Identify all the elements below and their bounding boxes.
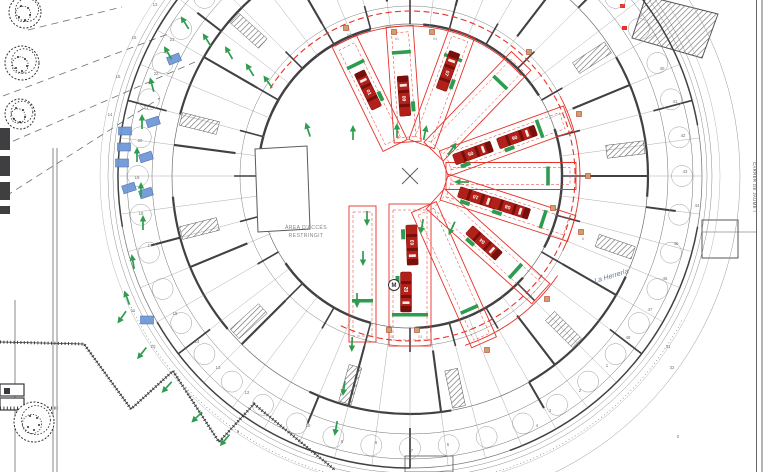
arrow-shaft: [424, 132, 426, 140]
evacuation-arrow: [350, 125, 356, 140]
evacuation-arrow: [134, 147, 140, 162]
tree-dot: [24, 58, 26, 60]
vehicle-window: [403, 301, 410, 304]
hydrant-marker: [485, 348, 490, 353]
arrow-head: [200, 32, 209, 41]
arrow-head: [360, 260, 366, 267]
blue-fixture: [118, 143, 131, 151]
room-number: 8: [237, 429, 240, 434]
tree-canopy: [9, 0, 41, 28]
vehicle-stripe: [407, 248, 418, 251]
arrow-shaft: [184, 22, 189, 29]
room-number: 11: [131, 308, 136, 313]
arrow-shaft: [206, 39, 211, 46]
evacuation-arrow: [147, 76, 157, 92]
facade-wall: [510, 227, 698, 451]
blue-fixture: [139, 151, 154, 163]
hydrant-marker: [392, 30, 397, 35]
hydrant-marker-label: 03: [418, 335, 422, 339]
wall-stub: [542, 88, 563, 100]
room-number: 14: [108, 112, 113, 117]
room-number: 10: [306, 423, 311, 428]
hydrant-marker-label: 04: [433, 37, 437, 41]
wall-stub: [322, 308, 334, 329]
blue-fixture-rect: [139, 151, 154, 163]
tree-dot: [36, 417, 38, 419]
arrow-shaft: [249, 69, 254, 76]
fire-vehicle: 08: [488, 197, 531, 225]
wall-stub: [486, 24, 498, 45]
room-number: 45: [674, 241, 679, 246]
dotted-arc: [124, 291, 682, 472]
vehicle-stripe: [401, 295, 412, 298]
room-number: 4: [536, 423, 539, 428]
inner-wall: [415, 278, 523, 328]
wall-stub: [364, 6, 370, 29]
partition-line: [467, 0, 521, 37]
arrow-head: [354, 302, 360, 309]
partition-line: [264, 0, 335, 46]
arrow-shaft: [196, 412, 202, 418]
room-wall: [578, 0, 599, 8]
arcade-cell: [194, 344, 215, 365]
room-number: 13: [153, 2, 158, 7]
room-wall: [307, 396, 318, 424]
stair-hatch: [339, 365, 362, 405]
floor-plan-drawing: 01090705061008040302M 606104980403 13161…: [0, 0, 768, 472]
hydrant-marker: [430, 30, 435, 35]
arcade-cell: [512, 413, 533, 434]
arrow-head: [222, 44, 231, 53]
annex-door: [0, 150, 10, 156]
annex-door: [0, 200, 10, 206]
wall-stub: [364, 323, 370, 346]
arena-room-block: [255, 146, 310, 232]
room-number: 21: [144, 105, 149, 110]
arrow-head: [350, 125, 356, 132]
evacuation-arrow: [417, 219, 426, 235]
lane-green-bar: [546, 167, 550, 186]
hydrant-marker-label: 9: [554, 213, 556, 217]
blue-fixture: [119, 127, 132, 135]
tree: [5, 46, 39, 80]
arrow-shaft: [344, 381, 345, 389]
wall-stub: [258, 88, 279, 100]
trees: [5, 0, 54, 442]
room-wall: [291, 0, 322, 24]
room-wall: [529, 382, 544, 408]
evacuation-arrow: [222, 44, 235, 60]
blue-fixture-rect: [119, 127, 132, 135]
fire-vehicle: 07: [436, 50, 465, 93]
vehicle-cab: [401, 306, 412, 312]
arrow-head: [121, 289, 129, 297]
fire-vehicle: 04: [462, 226, 502, 265]
hydrant-marker: [527, 50, 532, 55]
vehicle-green-pad: [411, 101, 416, 111]
wall-stub: [258, 252, 279, 264]
room-number: 18: [139, 211, 144, 216]
tree-dot: [15, 67, 17, 69]
arrow-head: [454, 179, 461, 185]
annex-fixture: [4, 388, 10, 394]
arrow-head: [331, 429, 338, 437]
blue-fixture-rect: [122, 182, 137, 194]
stair-hatch: [545, 311, 581, 347]
vehicle-window: [400, 84, 407, 87]
vehicle-cab: [397, 76, 408, 83]
tree-dot: [29, 14, 31, 16]
tree-dot: [29, 415, 31, 417]
arrow-shaft: [141, 347, 146, 354]
arcade-cell: [605, 344, 626, 365]
tree-dot: [21, 70, 23, 72]
room-number: 7: [411, 448, 414, 453]
vehicle-stripe: [401, 281, 412, 284]
stair-hatch: [179, 113, 219, 135]
room-number: 41: [673, 99, 678, 104]
m-badge-letter: M: [392, 283, 397, 289]
inner-wall: [286, 263, 371, 323]
room-number: 10: [151, 344, 156, 349]
vehicle-number: 03: [410, 239, 416, 245]
sight-line: [28, 7, 122, 30]
room-wall: [610, 329, 642, 353]
evacuation-arrow: [121, 289, 132, 305]
vehicle-number: 09: [400, 96, 406, 102]
room-number: 48: [626, 335, 631, 340]
room-wall: [433, 350, 441, 411]
arcade-cell: [221, 371, 242, 392]
annex-door: [0, 176, 10, 182]
arcade-cell: [476, 426, 497, 447]
room-number: 14: [195, 339, 200, 344]
tree-canopy: [5, 46, 39, 80]
arrow-head: [422, 125, 430, 133]
partition-line: [485, 0, 556, 46]
evacuation-arrow: [360, 251, 366, 266]
fire-vehicle: 02: [396, 272, 412, 312]
tree-canopy: [14, 402, 54, 442]
room-number: 17: [148, 243, 153, 248]
lane-green-bar: [392, 50, 411, 55]
arrow-shaft: [451, 222, 455, 230]
arcade-cell: [287, 413, 308, 434]
lane-green-bar: [346, 59, 365, 71]
arrow-shaft: [166, 382, 172, 388]
evacuation-arrow: [364, 211, 370, 226]
tree: [9, 0, 41, 28]
fire-vehicle: 01: [354, 67, 386, 110]
red-boundary-arc: [270, 11, 575, 341]
hydrant-marker: [551, 206, 556, 211]
evacuation-arrow: [243, 62, 256, 78]
arrow-head: [364, 220, 370, 227]
room-number: 13: [216, 365, 221, 370]
tree-canopy: [5, 99, 35, 129]
room-number: 20: [138, 138, 143, 143]
arrow-shaft: [126, 297, 129, 305]
arrow-head: [178, 15, 187, 24]
blue-fixture-rect: [118, 143, 131, 151]
tree-dot: [24, 19, 26, 21]
facade-wall: [118, 0, 222, 227]
street-name-label: CARRER DE JAUME I: [752, 162, 757, 212]
tree-dot: [26, 65, 28, 67]
arrow-shaft: [336, 421, 337, 429]
room-number: 43: [683, 169, 688, 174]
wall-stub: [286, 52, 303, 69]
wall-stub: [286, 283, 303, 300]
partition-line: [467, 315, 521, 446]
central-arena: [255, 146, 418, 232]
hydrant-marker: [387, 328, 392, 333]
partition-line: [559, 196, 700, 215]
room-wall: [379, 0, 387, 2]
evacuation-arrow: [135, 346, 149, 362]
evacuation-arrow: [217, 433, 232, 449]
restricted-area-label-line1: ÀREA D'ACCÉS: [285, 224, 327, 231]
blue-fixture-rect: [141, 316, 154, 324]
vehicle-cab: [407, 259, 418, 265]
tree-dot: [22, 109, 24, 111]
lane-green-bar: [392, 313, 428, 317]
hydrant-marker-label: 8: [582, 237, 584, 241]
fire-vehicle: 06: [496, 125, 539, 154]
room-wall: [197, 13, 221, 31]
vehicle-window: [409, 254, 416, 257]
evacuation-arrow: [454, 179, 469, 185]
arcade-cell: [152, 278, 173, 299]
partition-line: [298, 0, 352, 37]
tree: [5, 99, 35, 129]
outbuilding: [702, 220, 738, 258]
evacuation-arrow: [115, 309, 129, 325]
arcade-cell: [628, 313, 649, 334]
room-number: 42: [681, 133, 686, 138]
room-wall: [190, 243, 247, 267]
room-number: 44: [695, 203, 700, 208]
stair-hatch: [230, 13, 267, 48]
restricted-area-label-line2: RESTRINGIT: [289, 233, 324, 239]
hydrant-marker-label: 04: [390, 335, 394, 339]
lane-green-bar: [508, 263, 523, 280]
room-number: 19: [135, 175, 140, 180]
arrow-shaft: [121, 311, 126, 318]
room-wall: [174, 145, 235, 153]
vehicle-number: 02: [404, 287, 410, 293]
tree: [14, 402, 54, 442]
building-ring: [100, 0, 740, 472]
room-number: 31: [666, 344, 671, 349]
floor-plan-stage: 01090705061008040302M 606104980403 13161…: [0, 0, 768, 472]
arrow-head: [161, 44, 170, 53]
hydrant-marker: [415, 328, 420, 333]
arrow-shaft: [152, 84, 154, 92]
blue-fixture-rect: [116, 159, 129, 167]
room-wall: [517, 0, 555, 36]
annex-room: [0, 384, 24, 396]
arcade-cell: [361, 435, 382, 456]
site-surroundings: [0, 0, 762, 472]
wall-stub: [240, 130, 263, 136]
arcade-cell: [647, 278, 668, 299]
hydrant-marker: [579, 230, 584, 235]
arcade-cell: [669, 127, 690, 148]
wall-stub: [517, 283, 534, 300]
room-number: 23: [170, 37, 175, 42]
arrow-head: [302, 121, 310, 129]
tree-dot: [33, 429, 35, 431]
evacuation-arrow: [349, 337, 356, 352]
room-number: 15: [116, 74, 121, 79]
vehicle-stripe: [406, 234, 417, 237]
room-wall: [204, 57, 258, 88]
arrow-head: [134, 147, 140, 154]
hydrant-marker-label: 61: [395, 37, 399, 41]
red-connector-arc: [335, 26, 522, 76]
tree-dot: [17, 56, 19, 58]
roof-hatched: [632, 0, 718, 58]
room-number: 15: [173, 311, 178, 316]
blue-fixture: [122, 182, 137, 194]
room-number: 22: [154, 71, 159, 76]
room-number: 8: [375, 440, 378, 445]
red-mark: [622, 26, 627, 30]
partition-line: [334, 0, 371, 31]
evacuation-arrow: [140, 215, 146, 230]
hydrant-marker: [586, 174, 591, 179]
evacuation-arrow: [302, 121, 313, 137]
blue-fixture-rect: [146, 116, 161, 128]
arrow-shaft: [308, 129, 311, 137]
stair-hatch: [230, 304, 267, 339]
room-number: 40: [660, 66, 665, 71]
tree-dot: [13, 118, 15, 120]
room-number: 1: [606, 363, 609, 368]
blue-fixture: [146, 116, 161, 128]
room-number: 47: [648, 307, 653, 312]
hydrant-marker: [577, 112, 582, 117]
room-wall: [456, 0, 472, 6]
arcade-cell: [647, 53, 668, 74]
arrow-head: [349, 345, 356, 352]
inner-wall: [272, 29, 371, 112]
tree-dot: [24, 116, 26, 118]
wall-stub: [322, 24, 334, 45]
tree-dot: [27, 7, 29, 9]
lane-green-bar: [539, 210, 548, 229]
m-badge: M: [389, 280, 400, 291]
stair-hatch: [445, 368, 466, 408]
evacuation-arrow: [394, 123, 400, 138]
la-herreria-label: La Herrería: [594, 268, 630, 285]
vehicle-green-pad: [401, 229, 405, 239]
stair-hatch: [179, 218, 219, 240]
hydrant-marker-label: 60: [347, 33, 351, 37]
room-number: 3: [549, 408, 552, 413]
tree-dot: [27, 426, 29, 428]
room-number: 12: [245, 390, 250, 395]
blue-fixture: [141, 316, 154, 324]
lane-outline: [424, 52, 531, 161]
room-number: 6: [447, 442, 450, 447]
tree-dot: [20, 5, 22, 7]
room-number: 32: [670, 365, 675, 370]
wall-stub: [542, 252, 563, 264]
room-number: 0: [677, 434, 680, 439]
tree-dot: [38, 424, 40, 426]
arcade-cell: [669, 204, 690, 225]
stair-hatch: [606, 141, 645, 159]
lane-green-bar: [492, 75, 508, 91]
room-number: 16: [132, 35, 137, 40]
room-wall: [573, 85, 630, 109]
tree-dot: [18, 16, 20, 18]
fire-vehicle: 03: [401, 225, 418, 266]
room-number: 46: [663, 276, 668, 281]
tree-dot: [19, 121, 21, 123]
arrow-shaft: [228, 52, 232, 59]
arrow-head: [139, 114, 145, 121]
arrow-head: [147, 76, 155, 84]
blue-fixture: [116, 159, 129, 167]
hydrant-marker: [344, 26, 349, 31]
tree-dot: [15, 107, 17, 109]
arrow-shaft: [267, 81, 272, 88]
arrow-head: [243, 62, 252, 71]
hydrant-marker: [545, 297, 550, 302]
arcade-cell: [194, 0, 215, 8]
room-number: 2: [579, 388, 582, 393]
